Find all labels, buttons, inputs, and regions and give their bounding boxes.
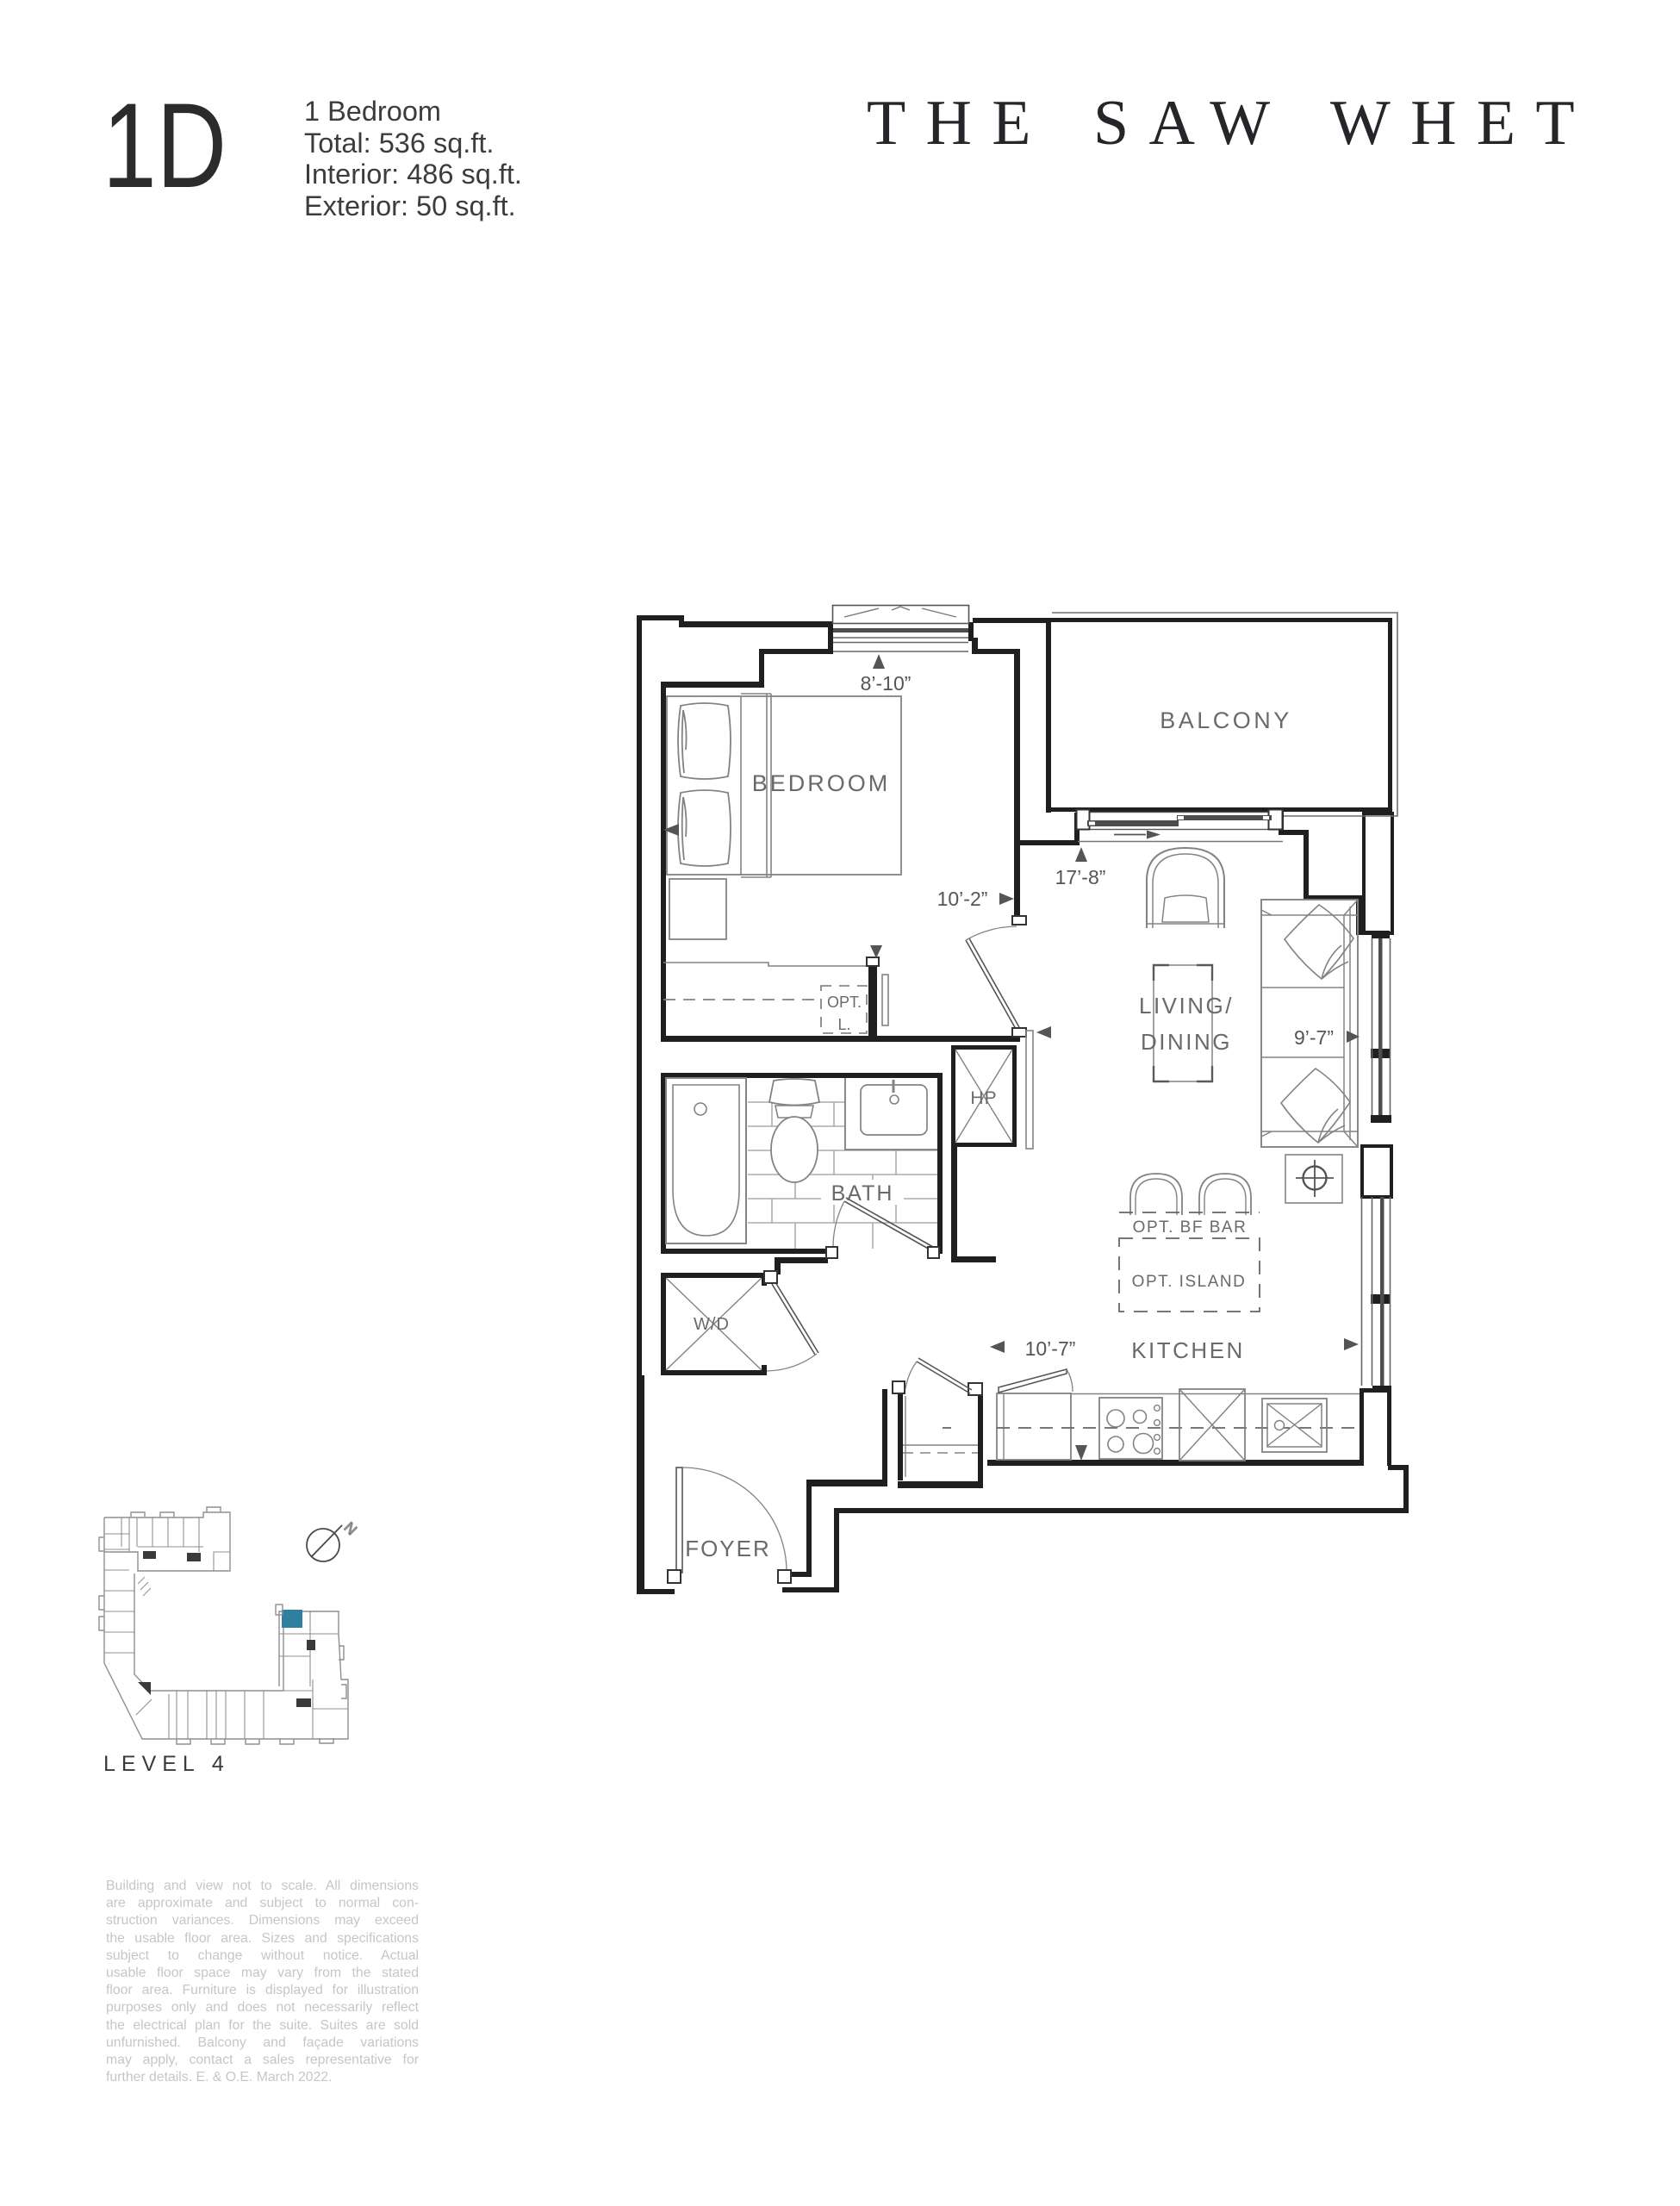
- svg-text:DINING: DINING: [1141, 1029, 1232, 1055]
- svg-text:9’-7”: 9’-7”: [1294, 1026, 1334, 1049]
- svg-text:BEDROOM: BEDROOM: [752, 770, 891, 796]
- svg-text:10’-2”: 10’-2”: [937, 888, 988, 910]
- svg-text:W/D: W/D: [694, 1315, 730, 1334]
- svg-text:OPT.: OPT.: [827, 994, 862, 1011]
- svg-text:OPT. ISLAND: OPT. ISLAND: [1132, 1273, 1247, 1291]
- svg-text:L.: L.: [837, 1016, 850, 1033]
- svg-text:KITCHEN: KITCHEN: [1131, 1337, 1245, 1363]
- svg-text:FOYER: FOYER: [685, 1536, 771, 1561]
- svg-text:17’-8”: 17’-8”: [1055, 866, 1106, 888]
- svg-text:HP: HP: [970, 1088, 997, 1108]
- svg-text:8’-10”: 8’-10”: [861, 672, 912, 695]
- svg-text:OPT. BF BAR: OPT. BF BAR: [1133, 1218, 1248, 1237]
- svg-text:BATH: BATH: [831, 1181, 894, 1206]
- svg-text:10’-7”: 10’-7”: [1025, 1337, 1076, 1360]
- svg-text:N: N: [341, 1519, 360, 1538]
- svg-text:LIVING/: LIVING/: [1139, 993, 1234, 1019]
- svg-text:BALCONY: BALCONY: [1160, 707, 1292, 733]
